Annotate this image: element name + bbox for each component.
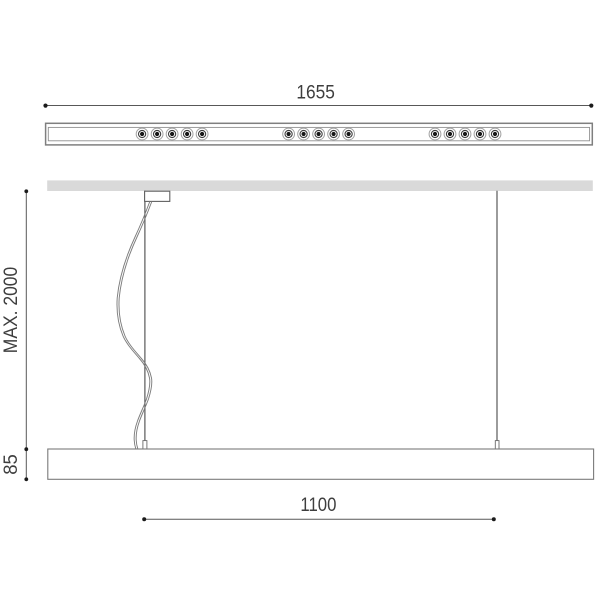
svg-text:1100: 1100 bbox=[300, 494, 336, 516]
svg-text:MAX. 2000: MAX. 2000 bbox=[0, 267, 22, 354]
svg-text:1655: 1655 bbox=[296, 82, 335, 104]
svg-text:85: 85 bbox=[0, 454, 22, 475]
